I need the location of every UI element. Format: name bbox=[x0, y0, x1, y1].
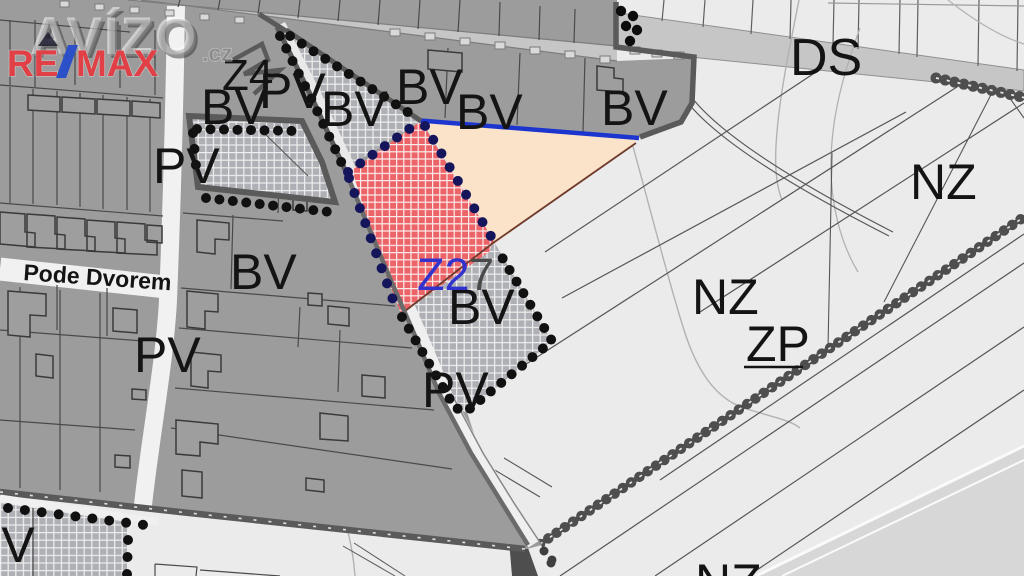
svg-text:ZP: ZP bbox=[746, 316, 810, 372]
svg-text:NZ: NZ bbox=[910, 154, 977, 210]
svg-text:.cz: .cz bbox=[202, 40, 233, 66]
svg-text:NZ: NZ bbox=[695, 554, 762, 576]
svg-text:BV: BV bbox=[230, 244, 297, 300]
svg-text:PV: PV bbox=[153, 138, 220, 194]
svg-text:Z2: Z2 bbox=[417, 249, 470, 300]
svg-text:PV: PV bbox=[0, 517, 35, 573]
svg-text:DS: DS bbox=[790, 29, 862, 87]
svg-text:PV: PV bbox=[134, 327, 201, 383]
svg-text:PV: PV bbox=[259, 63, 326, 119]
svg-text:BV: BV bbox=[601, 80, 668, 136]
svg-text:BV: BV bbox=[321, 81, 388, 137]
svg-text:PV: PV bbox=[422, 362, 489, 418]
svg-text:RE: RE bbox=[7, 43, 58, 84]
svg-text:BV: BV bbox=[396, 59, 463, 115]
svg-text:BV: BV bbox=[456, 84, 523, 140]
svg-text:MAX: MAX bbox=[76, 43, 159, 84]
svg-text:7: 7 bbox=[469, 249, 494, 300]
